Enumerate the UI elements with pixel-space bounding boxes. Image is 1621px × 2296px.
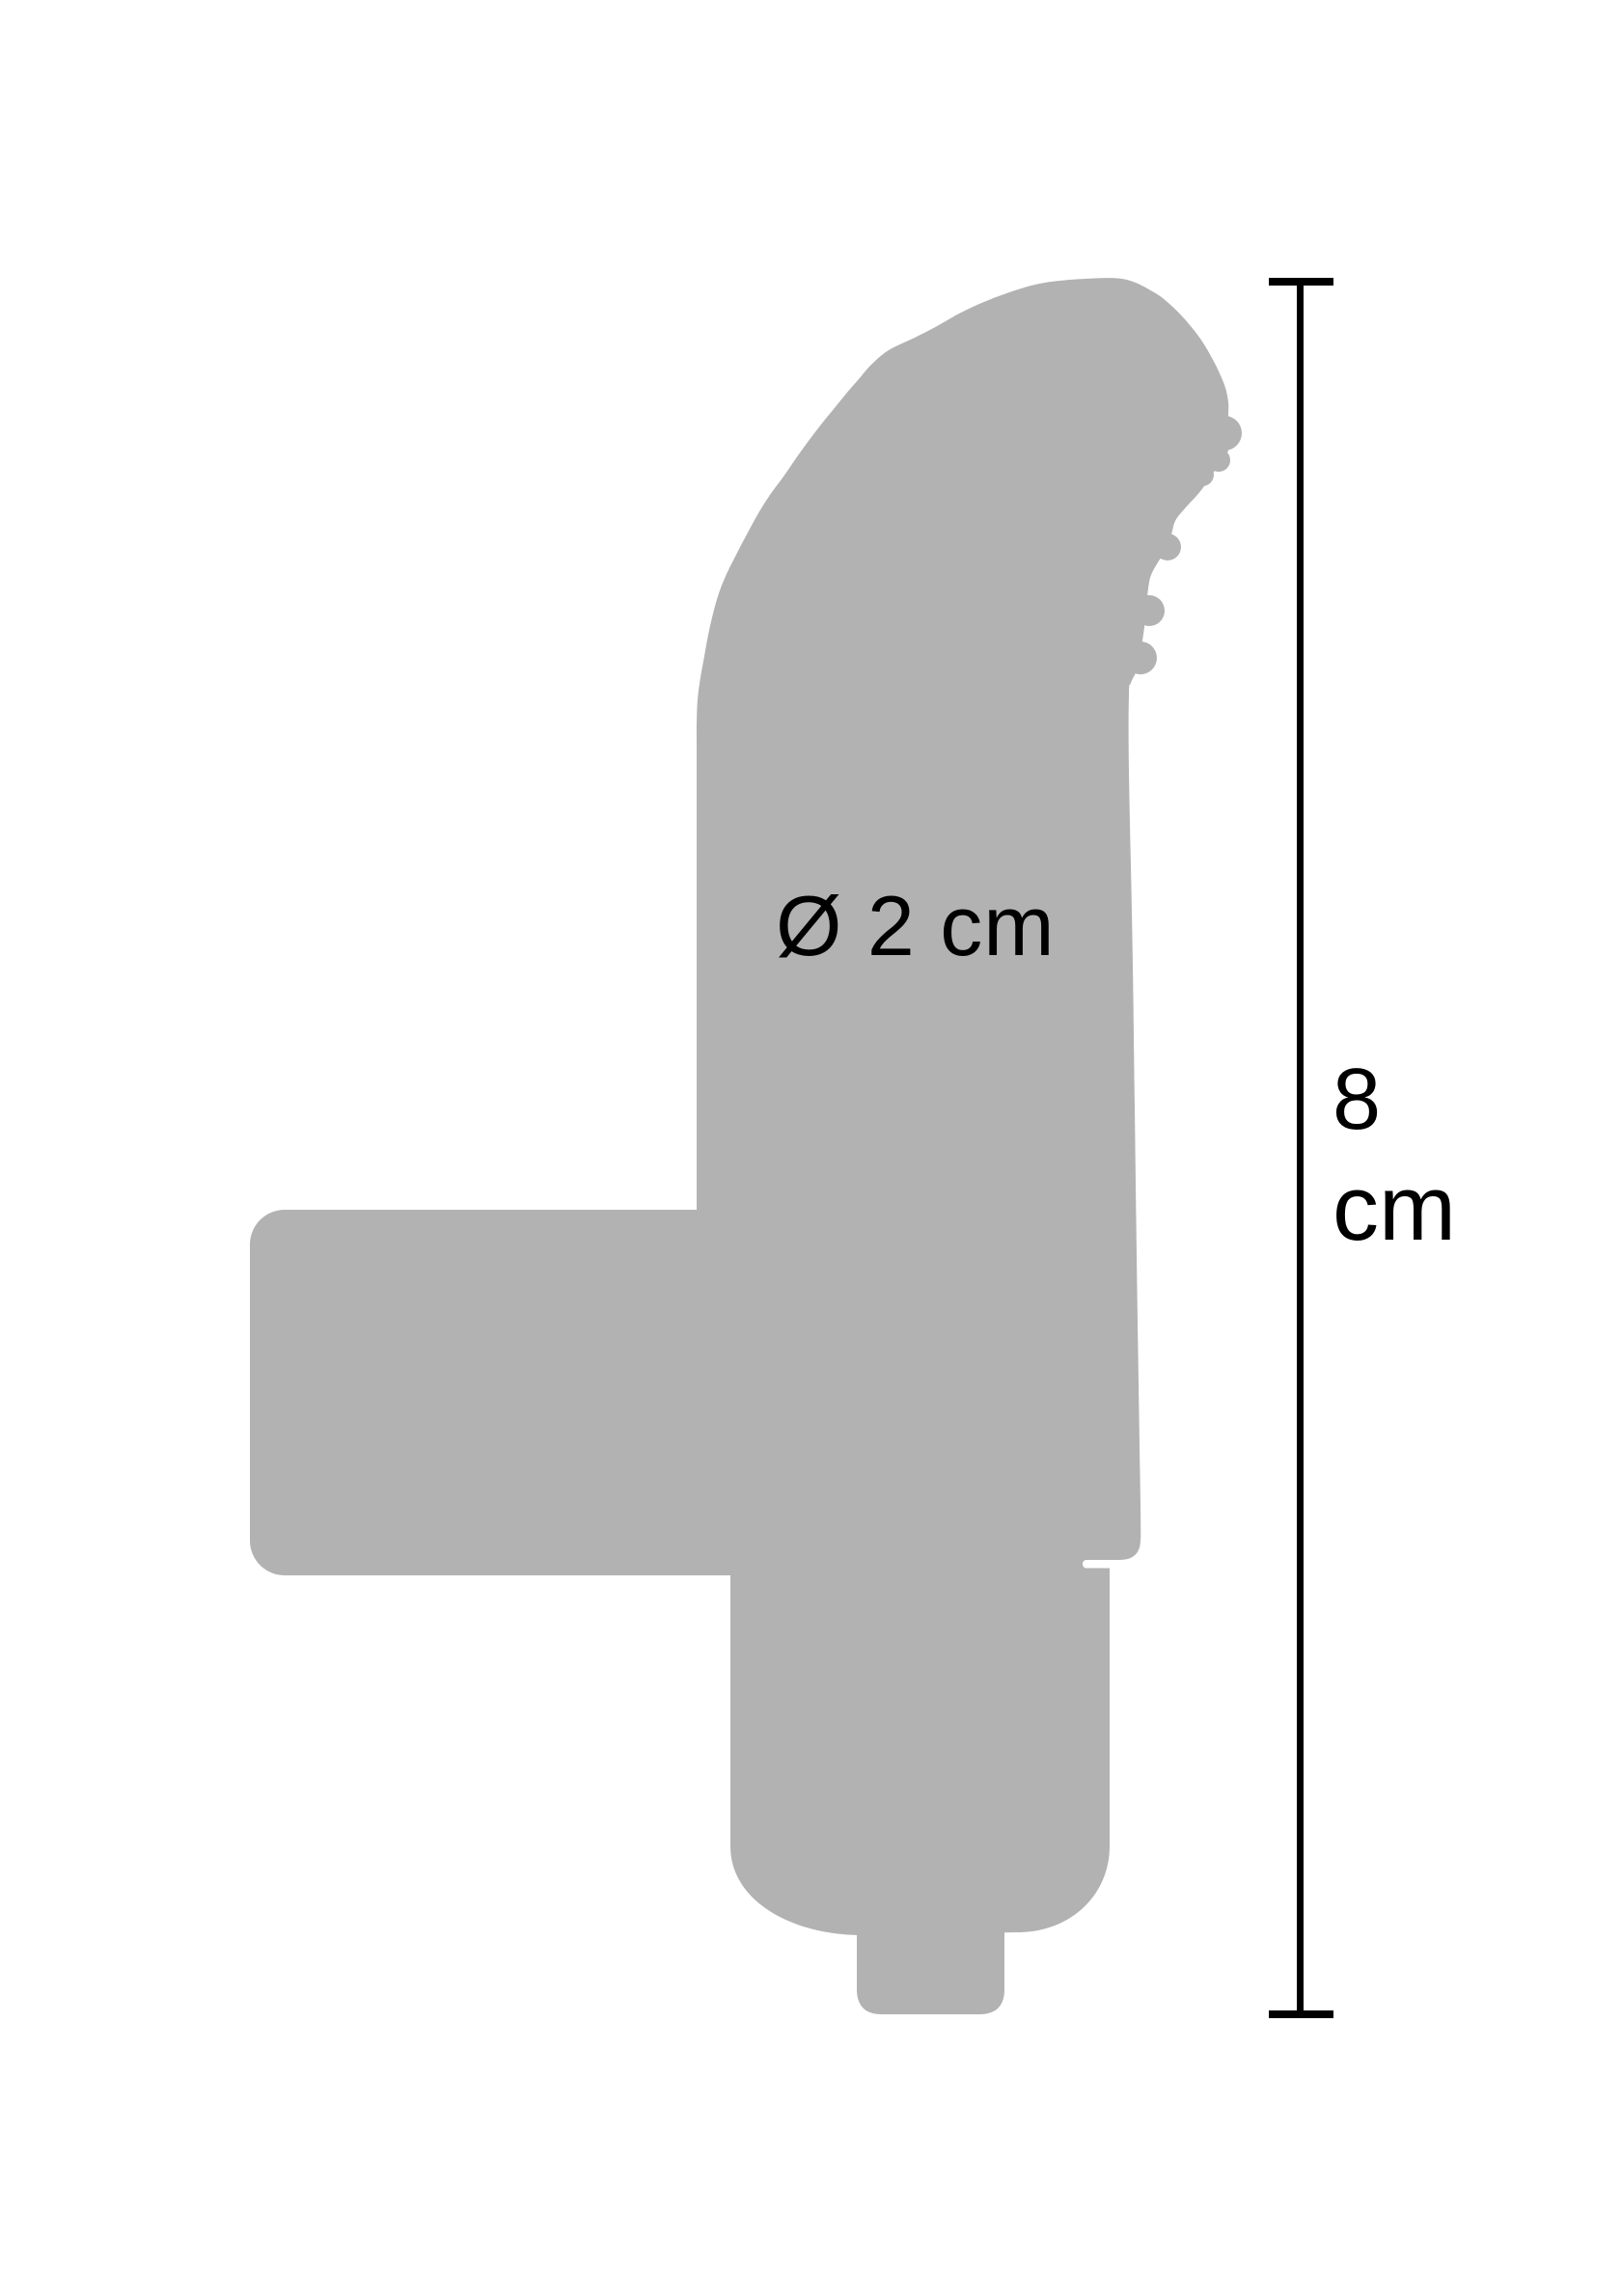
svg-text:8: 8 (1333, 1052, 1381, 1148)
svg-text:Ø 2 cm: Ø 2 cm (776, 878, 1056, 973)
svg-text:cm: cm (1333, 1157, 1456, 1260)
